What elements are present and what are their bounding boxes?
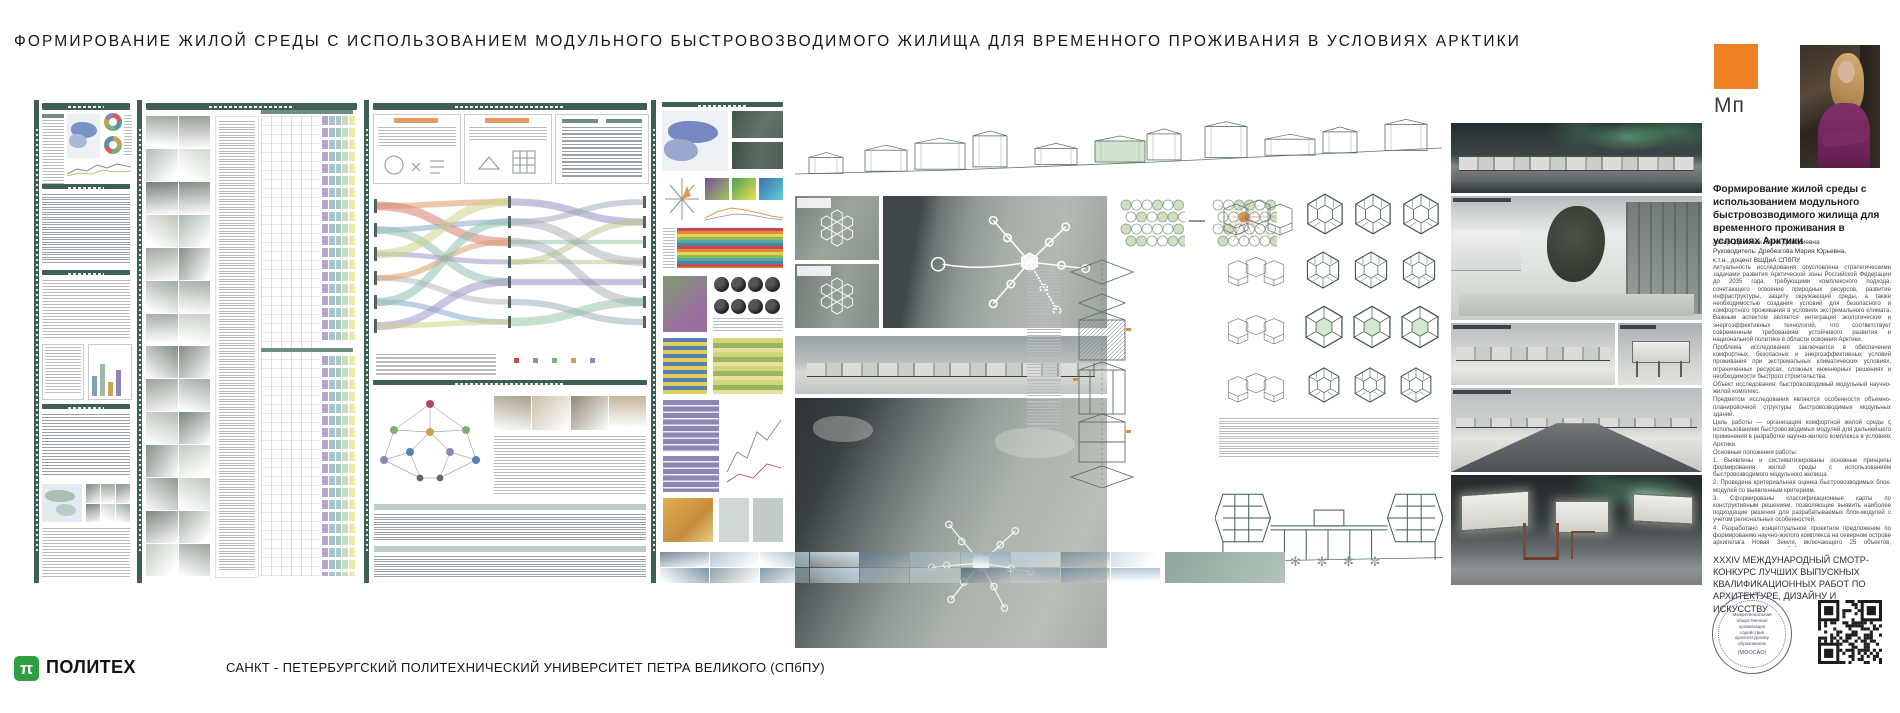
hex-floor-plan bbox=[1351, 366, 1389, 404]
hex-floor-plan bbox=[1399, 192, 1443, 236]
politech-pi-glyph: π bbox=[20, 659, 33, 679]
board4-header bbox=[662, 102, 783, 107]
precedent-photo bbox=[146, 182, 178, 214]
competition-poster-sheet: { "page_title": "ФОРМИРОВАНИЕ ЖИЛОЙ СРЕД… bbox=[0, 0, 1900, 713]
criteria-network-diagram bbox=[374, 394, 486, 498]
board1-header bbox=[42, 103, 130, 110]
politech-logo: π bbox=[14, 656, 39, 681]
reference-building-photo bbox=[1061, 552, 1110, 567]
analysis-photo bbox=[101, 484, 115, 503]
precedent-photo bbox=[146, 544, 178, 576]
principle-icons-1 bbox=[382, 151, 452, 179]
annotation-text: Актуальность исследования обусловлена ст… bbox=[1713, 265, 1891, 547]
board-precedent-matrix bbox=[137, 100, 361, 583]
university-name: САНКТ - ПЕТЕРБУРГСКИЙ ПОЛИТЕХНИЧЕСКИЙ УН… bbox=[226, 660, 825, 675]
reference-building-photo bbox=[1111, 568, 1160, 583]
wind-rose bbox=[663, 176, 701, 222]
reference-building-photo bbox=[1011, 568, 1060, 583]
precedent-photo bbox=[179, 511, 211, 543]
exploded-module-axonometric bbox=[1067, 258, 1137, 488]
atrium-tree bbox=[1547, 206, 1605, 282]
precedent-photo bbox=[146, 149, 178, 181]
precedent-photo bbox=[146, 346, 178, 378]
site-scheme-1 bbox=[795, 196, 879, 260]
insolation-strips bbox=[663, 338, 707, 394]
reference-building-photo bbox=[961, 552, 1010, 567]
render-night-aurora-street bbox=[1451, 123, 1702, 193]
precedent-photo bbox=[146, 511, 178, 543]
principle-icons-2 bbox=[473, 145, 543, 179]
analysis-photo bbox=[116, 484, 130, 503]
board2-header bbox=[146, 103, 357, 110]
sun-path-diagrams bbox=[713, 276, 783, 316]
hex-floor-plan bbox=[1303, 250, 1343, 290]
precedent-photo bbox=[146, 478, 178, 510]
precedent-photo bbox=[146, 412, 178, 444]
hex-floor-plan-green bbox=[1397, 304, 1443, 350]
cluster-axon-row4 bbox=[1225, 368, 1287, 408]
stamp-abbr: (МООСАО) bbox=[1738, 650, 1767, 656]
hex-floor-plan bbox=[1399, 250, 1439, 290]
world-map-thumb bbox=[42, 484, 82, 522]
reference-building-photo bbox=[1011, 552, 1060, 567]
vegetation-table bbox=[713, 338, 783, 394]
precedent-photo bbox=[146, 116, 178, 148]
cluster-axon-row3 bbox=[1225, 310, 1287, 350]
qr-code bbox=[1818, 600, 1882, 664]
precedent-photo bbox=[179, 116, 211, 148]
courtyard-building-left bbox=[1451, 230, 1521, 270]
render-stilt-street-view bbox=[1451, 323, 1615, 385]
reference-building-photo bbox=[710, 568, 759, 583]
analysis-photo bbox=[101, 504, 115, 523]
reference-building-photo bbox=[860, 552, 909, 567]
criteria-color-columns-bottom bbox=[322, 356, 355, 576]
precedent-photo bbox=[179, 412, 211, 444]
render-courtyard-atrium bbox=[1451, 196, 1702, 320]
reference-photo-strip bbox=[494, 396, 646, 430]
board3-section2-header bbox=[373, 380, 647, 385]
lit-module-2 bbox=[1555, 501, 1609, 533]
precedent-photo bbox=[179, 248, 211, 280]
reference-building-photo bbox=[810, 568, 859, 583]
building-silhouettes bbox=[1459, 157, 1695, 170]
reference-building-photo bbox=[910, 568, 959, 583]
cluster-axon-row2 bbox=[1225, 252, 1287, 292]
precedent-photo bbox=[179, 281, 211, 313]
site-scheme-2 bbox=[795, 264, 879, 328]
lit-module-1 bbox=[1461, 491, 1529, 532]
reference-photo bbox=[494, 396, 531, 430]
supervisor-degree-line: к.т.н., доцент ВШДиА СПбПУ bbox=[1713, 257, 1891, 266]
precedent-photo bbox=[179, 215, 211, 247]
longitudinal-elevation bbox=[795, 108, 1442, 188]
analysis-curves bbox=[725, 402, 783, 490]
photo-face bbox=[1838, 61, 1855, 83]
steel-structure bbox=[1523, 523, 1559, 560]
reference-building-photo bbox=[910, 552, 959, 567]
precedent-photo bbox=[179, 346, 211, 378]
alluvial-sankey-diagram bbox=[372, 188, 648, 350]
hex-floor-plan bbox=[1397, 366, 1435, 404]
moosao-stamp: Межрегиональная общественная организация… bbox=[1712, 594, 1792, 674]
hex-floor-plan bbox=[1351, 192, 1395, 236]
politech-logo-text: ПОЛИТЕХ bbox=[46, 657, 136, 678]
reference-photo bbox=[532, 396, 569, 430]
donut-chart-1 bbox=[104, 113, 122, 131]
board3-header bbox=[373, 103, 647, 110]
line-chart bbox=[67, 160, 131, 178]
pier-deck bbox=[1451, 423, 1702, 472]
mp-logo-label: Мп bbox=[1714, 94, 1745, 118]
precedent-photo bbox=[146, 215, 178, 247]
precedent-photo bbox=[146, 281, 178, 313]
board-context-analysis bbox=[34, 100, 134, 583]
climate-heat-table bbox=[677, 228, 783, 268]
precedent-photo bbox=[179, 544, 211, 576]
analysis-photo bbox=[116, 504, 130, 523]
module-grid-diagram-1 bbox=[1119, 198, 1185, 250]
analysis-photo bbox=[86, 504, 100, 523]
board-climate-analysis bbox=[659, 100, 786, 550]
coastal-aerial-photo bbox=[795, 398, 1107, 648]
donut-chart-2 bbox=[104, 136, 122, 154]
criteria-color-columns-top bbox=[322, 116, 355, 340]
supervisor-line: Руководитель: Дребезгова Мария Юрьевна, bbox=[1713, 248, 1891, 257]
russia-map-thumb bbox=[67, 114, 100, 158]
render-pier-boardwalk bbox=[1451, 388, 1702, 472]
climate-map-3 bbox=[759, 178, 783, 200]
reference-building-photo bbox=[710, 552, 759, 567]
renders-column bbox=[1451, 103, 1702, 585]
hex-floor-plan bbox=[1303, 192, 1347, 236]
lit-module-3 bbox=[1633, 493, 1693, 524]
reference-building-photo bbox=[760, 568, 809, 583]
climate-map-2 bbox=[732, 178, 756, 200]
precedent-photo-column bbox=[146, 116, 210, 576]
temperature-curve bbox=[705, 204, 783, 222]
precedent-photo bbox=[179, 149, 211, 181]
reference-building-photo bbox=[810, 552, 859, 567]
terrain-overlay-map bbox=[663, 276, 707, 332]
satellite-thumb-2 bbox=[732, 142, 783, 169]
reference-building-photo bbox=[1061, 568, 1110, 583]
board1-title-strip bbox=[34, 100, 39, 583]
author-photo bbox=[1800, 45, 1880, 168]
precedent-photo bbox=[146, 445, 178, 477]
board-masterplan-plans bbox=[789, 100, 1448, 585]
courtyard-ground bbox=[1459, 294, 1694, 316]
arctic-zone-map bbox=[662, 111, 728, 171]
reference-building-photo bbox=[660, 552, 709, 567]
precedent-photo bbox=[179, 445, 211, 477]
precedent-photo bbox=[146, 248, 178, 280]
reference-building-photo bbox=[961, 568, 1010, 583]
photo-grid-small bbox=[86, 484, 130, 522]
precedent-photo bbox=[146, 379, 178, 411]
reference-building-photo bbox=[1111, 552, 1160, 567]
render-stilt-building bbox=[1618, 323, 1702, 385]
reference-building-photo bbox=[860, 568, 909, 583]
steel-structure bbox=[1571, 531, 1595, 559]
hex-floor-plan-green bbox=[1301, 304, 1347, 350]
precedent-photo bbox=[179, 379, 211, 411]
analysis-photo bbox=[86, 484, 100, 503]
precedent-photo bbox=[179, 314, 211, 346]
purple-data-table-1 bbox=[663, 400, 719, 452]
arrow-between-grids bbox=[1189, 220, 1205, 222]
sankey-legend bbox=[514, 358, 595, 363]
reference-building-photo bbox=[760, 552, 809, 567]
hex-floor-plan-green bbox=[1349, 304, 1395, 350]
author-line: Автор: Деменюк Юлия Дмитриевна bbox=[1713, 239, 1891, 248]
precedent-photo bbox=[146, 314, 178, 346]
board-principles-sankey bbox=[364, 100, 656, 583]
wind-load-map bbox=[663, 498, 713, 542]
mp-logo-mark bbox=[1714, 44, 1758, 89]
snowflake-module-icons: ✻ ✼ ✻ ✼ bbox=[1290, 554, 1440, 582]
reference-photo bbox=[609, 396, 646, 430]
precedent-photo bbox=[179, 182, 211, 214]
reference-buildings-strip bbox=[660, 552, 1160, 583]
reference-building-photo bbox=[660, 568, 709, 583]
precedent-photo bbox=[179, 478, 211, 510]
cluster-axon-row1 bbox=[1219, 196, 1297, 240]
climate-map-1 bbox=[705, 178, 729, 200]
purple-data-table-2 bbox=[663, 456, 719, 492]
page-title: ФОРМИРОВАНИЕ ЖИЛОЙ СРЕДЫ С ИСПОЛЬЗОВАНИЕ… bbox=[14, 33, 1521, 51]
hex-floor-plan bbox=[1351, 250, 1391, 290]
render-night-playground bbox=[1451, 475, 1702, 585]
reference-photo bbox=[571, 396, 608, 430]
author-block: Автор: Деменюк Юлия Дмитриевна Руководит… bbox=[1713, 239, 1891, 265]
stamp-organization-text: Межрегиональная общественная организация… bbox=[1726, 612, 1778, 646]
hex-floor-plan bbox=[1305, 366, 1343, 404]
criteria-grid bbox=[261, 116, 319, 576]
satellite-thumb-1 bbox=[732, 111, 783, 138]
mini-site-map bbox=[1165, 552, 1285, 583]
